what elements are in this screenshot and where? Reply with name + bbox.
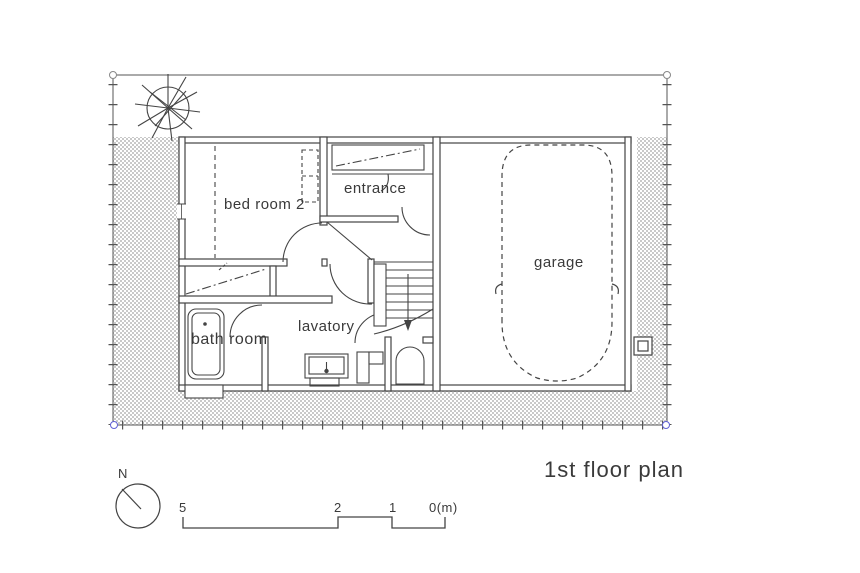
window-notch [177, 204, 186, 219]
bedroom-south-wall [179, 259, 287, 266]
toilet-west-wall [385, 337, 391, 391]
lavatory-north-wall [179, 296, 332, 303]
boundary-corner-marker [663, 422, 670, 429]
bathtub-drain [203, 322, 207, 326]
entrance-south-wall [320, 216, 398, 222]
scale-label-0m: 0(m) [429, 500, 458, 515]
compass-label: N [118, 466, 128, 481]
toilet-north-wall [423, 337, 433, 343]
stair-handrail [374, 264, 386, 326]
scale-label-2: 2 [334, 500, 342, 515]
bedroom-east-wall [320, 137, 327, 225]
room-label-entrance: entrance [344, 180, 406, 197]
toilet-icon [396, 347, 424, 384]
scale-bar [183, 517, 445, 528]
tree-icon [135, 74, 200, 141]
bath-bay [185, 385, 223, 398]
boundary-corner-marker [111, 422, 118, 429]
scale-label-1: 1 [389, 500, 397, 515]
garage-west-wall [433, 137, 440, 391]
stairs-west-wall [368, 259, 374, 303]
room-label-lavatory: lavatory [298, 318, 355, 335]
north-arrow-icon [116, 484, 160, 528]
room-label-bathroom: bath room [191, 331, 268, 349]
room-label-bedroom2: bed room 2 [224, 196, 305, 213]
room-label-garage: garage [534, 254, 584, 271]
wash-counter [357, 352, 369, 383]
drawing-title: 1st floor plan [544, 457, 684, 483]
boundary-corner-marker [110, 72, 117, 79]
floor-plan-canvas: bed room 2 entrance garage lavatory bath… [0, 0, 860, 573]
boundary-corner-marker [664, 72, 671, 79]
floor-plan-drawing [0, 0, 860, 573]
wash-counter [369, 352, 383, 364]
scale-label-5: 5 [179, 500, 187, 515]
